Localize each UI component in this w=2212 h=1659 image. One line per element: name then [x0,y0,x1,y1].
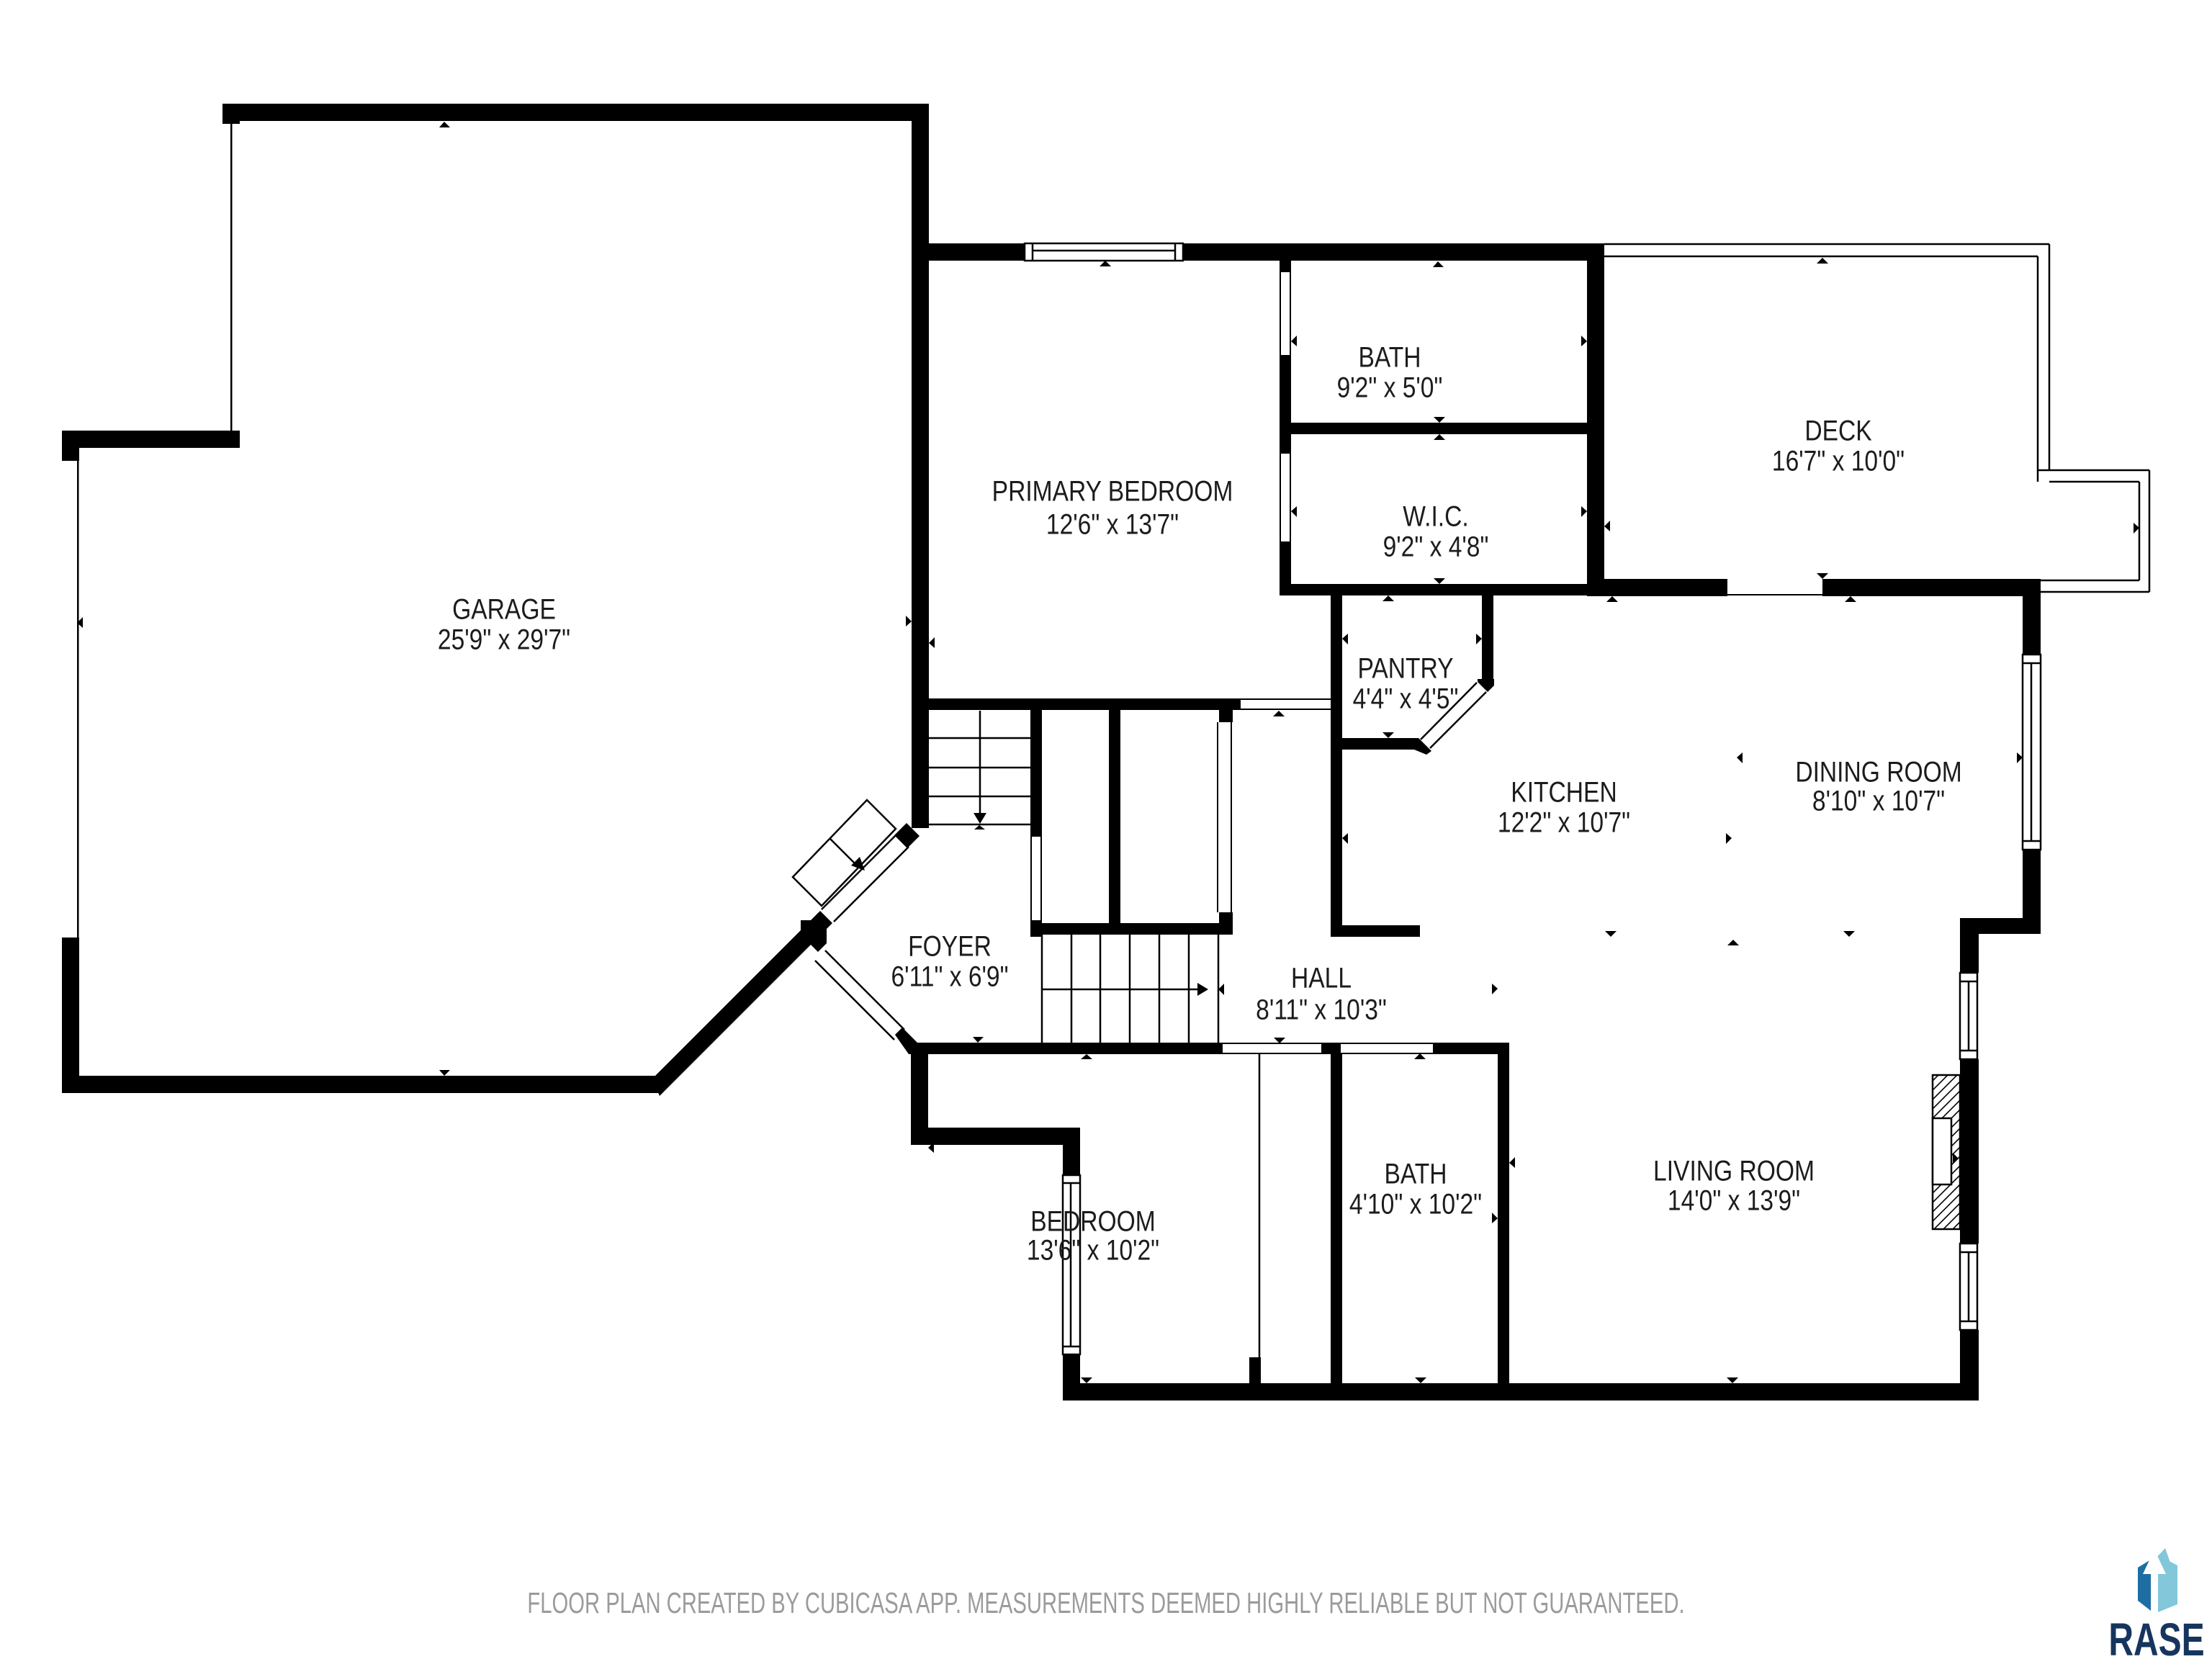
svg-text:FOYER: FOYER [908,930,992,962]
svg-text:PRIMARY BEDROOM: PRIMARY BEDROOM [992,475,1233,507]
svg-text:DINING ROOM: DINING ROOM [1795,756,1961,788]
svg-text:25'9" x 29'7": 25'9" x 29'7" [438,624,570,655]
svg-text:9'2" x 5'0": 9'2" x 5'0" [1337,372,1443,403]
svg-text:RASE: RASE [2108,1614,2204,1659]
svg-text:KITCHEN: KITCHEN [1511,776,1617,808]
svg-text:PANTRY: PANTRY [1357,652,1453,684]
svg-text:BATH: BATH [1358,341,1421,373]
svg-text:14'0" x 13'9": 14'0" x 13'9" [1668,1184,1800,1216]
svg-text:4'4" x 4'5": 4'4" x 4'5" [1353,683,1459,714]
svg-text:13'6" x 10'2": 13'6" x 10'2" [1027,1234,1159,1266]
svg-text:BEDROOM: BEDROOM [1030,1205,1156,1237]
svg-text:6'11" x 6'9": 6'11" x 6'9" [891,961,1008,992]
svg-text:BATH: BATH [1384,1158,1447,1190]
svg-text:8'11" x 10'3": 8'11" x 10'3" [1256,994,1387,1025]
svg-text:8'10" x 10'7": 8'10" x 10'7" [1812,785,1945,817]
svg-text:LIVING ROOM: LIVING ROOM [1653,1155,1815,1187]
svg-text:4'10" x 10'2": 4'10" x 10'2" [1349,1188,1482,1220]
svg-text:12'6" x 13'7": 12'6" x 13'7" [1046,508,1179,540]
svg-text:DECK: DECK [1804,415,1872,446]
svg-text:16'7" x 10'0": 16'7" x 10'0" [1772,445,1905,477]
svg-text:12'2" x 10'7": 12'2" x 10'7" [1498,806,1630,838]
svg-text:W.I.C.: W.I.C. [1403,500,1468,532]
svg-text:GARAGE: GARAGE [452,593,556,625]
svg-text:9'2" x 4'8": 9'2" x 4'8" [1383,531,1489,562]
svg-text:FLOOR PLAN CREATED BY CUBICASA: FLOOR PLAN CREATED BY CUBICASA APP. MEAS… [527,1586,1684,1619]
svg-text:HALL: HALL [1291,962,1352,994]
